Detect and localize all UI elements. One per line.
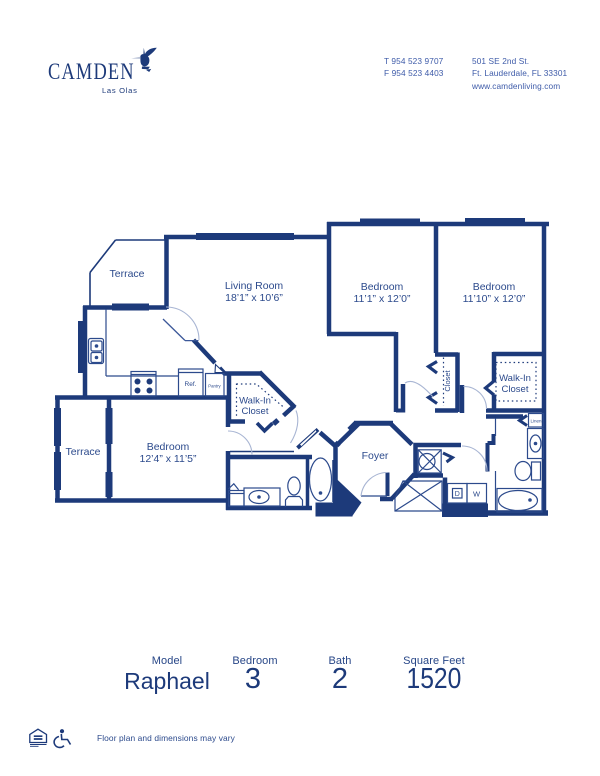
svg-text:Bedroom: Bedroom	[147, 441, 190, 453]
svg-text:Bedroom: Bedroom	[473, 281, 516, 293]
svg-text:Living Room: Living Room	[225, 280, 284, 292]
svg-text:Closet: Closet	[502, 384, 529, 395]
svg-text:12’4” x 11’5”: 12’4” x 11’5”	[139, 453, 197, 465]
svg-text:Closet: Closet	[443, 369, 452, 391]
svg-text:W: W	[473, 490, 481, 499]
svg-text:18’1” x 10’6”: 18’1” x 10’6”	[225, 292, 283, 304]
svg-text:Closet: Closet	[242, 406, 269, 417]
svg-text:D: D	[455, 491, 460, 498]
svg-text:Walk-In: Walk-In	[499, 373, 531, 384]
svg-text:Terrace: Terrace	[65, 446, 100, 458]
svg-text:Ref.: Ref.	[185, 381, 197, 388]
svg-text:Foyer: Foyer	[362, 450, 389, 462]
svg-text:Bedroom: Bedroom	[361, 281, 404, 293]
svg-text:Walk-In: Walk-In	[239, 396, 271, 407]
svg-text:Linen: Linen	[530, 419, 542, 424]
svg-text:11’1” x 12’0”: 11’1” x 12’0”	[353, 293, 411, 305]
svg-text:11’10” x 12’0”: 11’10” x 12’0”	[463, 293, 526, 305]
svg-text:Pantry: Pantry	[208, 384, 221, 389]
svg-text:Terrace: Terrace	[109, 268, 144, 280]
